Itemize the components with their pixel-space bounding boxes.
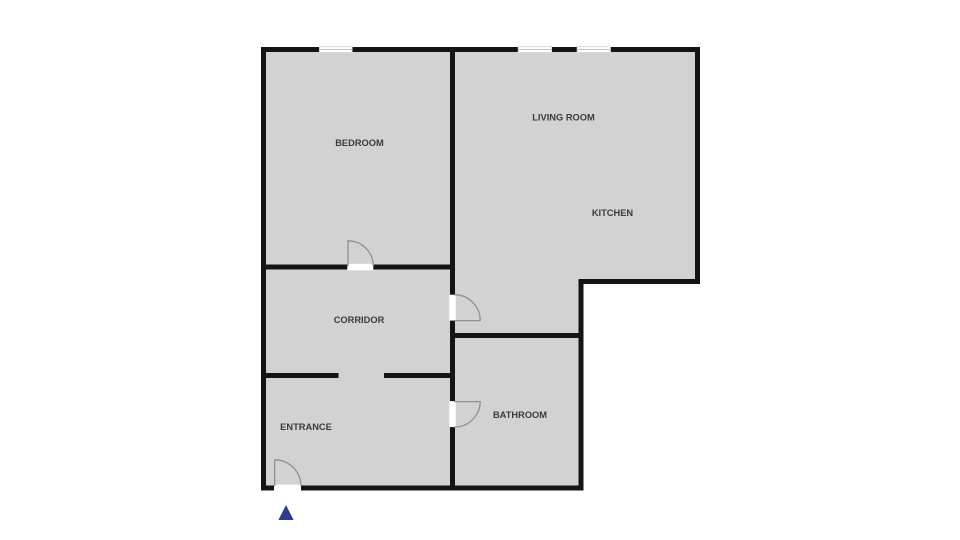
svg-text:CORRIDOR: CORRIDOR (334, 315, 385, 325)
svg-text:LIVING ROOM: LIVING ROOM (532, 112, 595, 122)
svg-text:KITCHEN: KITCHEN (592, 208, 634, 218)
svg-text:BEDROOM: BEDROOM (335, 138, 384, 148)
svg-text:ENTRANCE: ENTRANCE (280, 422, 332, 432)
svg-text:BATHROOM: BATHROOM (493, 410, 547, 420)
